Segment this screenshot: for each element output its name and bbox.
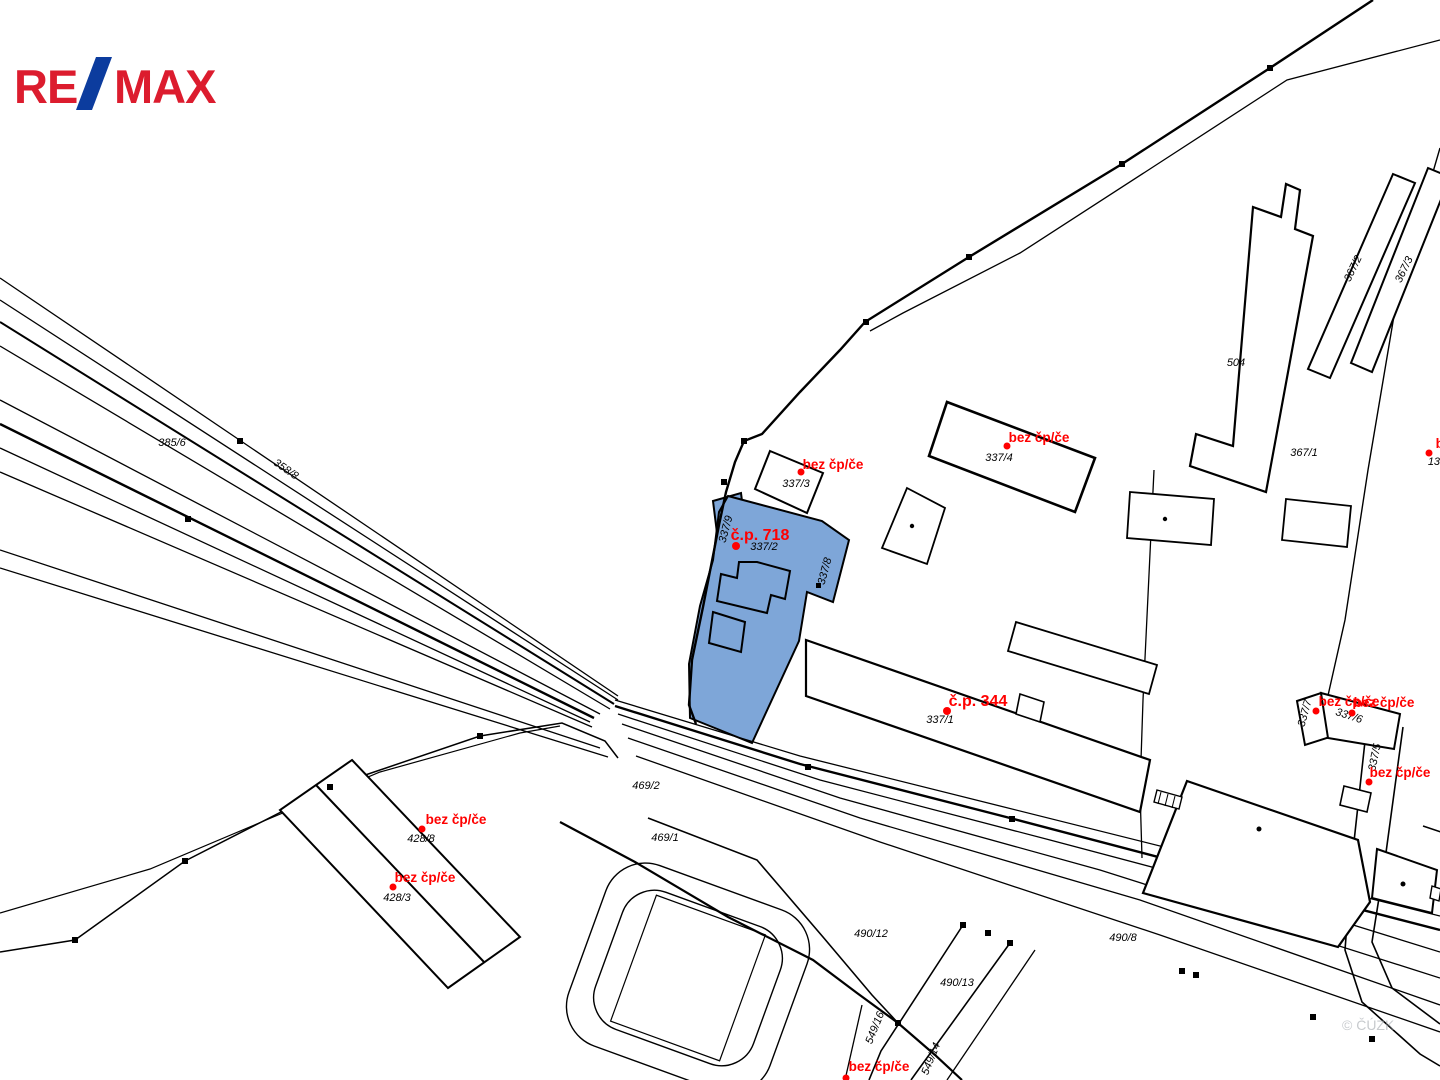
red-label: bez čp/če bbox=[803, 457, 864, 472]
corridor-line bbox=[0, 346, 610, 709]
parcel-label: 337/3 bbox=[782, 478, 810, 490]
red-label: bez čp/če bbox=[426, 812, 487, 827]
building-small-strip-end bbox=[1340, 786, 1371, 812]
red-label: č.p. 344 bbox=[949, 693, 1008, 710]
building-504 bbox=[1190, 184, 1313, 492]
remax-logo-re: RE bbox=[14, 60, 77, 113]
building-edge-partial bbox=[1423, 826, 1440, 832]
branch-road-line bbox=[560, 822, 962, 1080]
red-point-marker bbox=[1349, 710, 1356, 717]
corridor-line bbox=[0, 448, 590, 722]
red-label: bez čp/če bbox=[849, 1059, 910, 1074]
parcel-label: 337/1 bbox=[926, 714, 954, 726]
building-notch bbox=[1154, 790, 1182, 809]
nested-feature bbox=[555, 851, 822, 1080]
parcel-label: 469/2 bbox=[632, 780, 660, 792]
parcel-label: 134 bbox=[1428, 456, 1440, 468]
building-step bbox=[1430, 886, 1440, 901]
parcel-label: 490/13 bbox=[940, 977, 975, 989]
building-small bbox=[1282, 499, 1351, 547]
parcel-label: 490/8 bbox=[1109, 932, 1137, 944]
cadastral-map-page: 385/6 358/8 337/3 337/2 337/9 337/8 337/… bbox=[0, 0, 1440, 1080]
building-long-thin bbox=[1008, 622, 1157, 694]
parcel-label: 428/8 bbox=[407, 833, 435, 845]
corridor-line bbox=[0, 400, 600, 714]
corridor-line bbox=[0, 568, 608, 757]
buildings bbox=[280, 168, 1440, 988]
red-label: bez čp/če bbox=[1370, 765, 1431, 780]
parcel-label: 549/16 bbox=[863, 1009, 887, 1046]
red-label: bez čp/če bbox=[1436, 436, 1440, 451]
map-canvas: 385/6 358/8 337/3 337/2 337/9 337/8 337/… bbox=[0, 0, 1440, 1080]
building-with-point bbox=[1127, 492, 1214, 545]
parcel-label: 469/1 bbox=[651, 832, 679, 844]
parcel-label: 504 bbox=[1227, 357, 1245, 369]
corridor-line bbox=[0, 300, 618, 700]
parcel-label: 337/4 bbox=[985, 452, 1013, 464]
red-label: bez čp/če bbox=[1354, 695, 1415, 710]
parcel-label: 490/12 bbox=[854, 928, 888, 940]
red-label: č.p. 718 bbox=[731, 527, 790, 544]
red-point-marker bbox=[1426, 450, 1433, 457]
strip-line bbox=[869, 925, 963, 1080]
building-small-bottom-right bbox=[1372, 849, 1437, 913]
corridor-line bbox=[0, 424, 594, 718]
copyright-watermark: © ČÚZK bbox=[1342, 1017, 1395, 1033]
remax-logo: RE MAX bbox=[14, 57, 216, 113]
red-point-marker bbox=[419, 826, 426, 833]
red-label: bez čp/če bbox=[1009, 430, 1070, 445]
parcel-label: 385/6 bbox=[158, 437, 186, 449]
parcel-label: 367/1 bbox=[1290, 447, 1318, 459]
corridor-line bbox=[0, 472, 592, 727]
parcel-label: 428/3 bbox=[383, 892, 411, 904]
corridor-line bbox=[0, 278, 618, 696]
remax-logo-slash bbox=[76, 57, 112, 110]
branch-road-line bbox=[648, 818, 898, 1023]
corridor-line bbox=[0, 322, 614, 704]
red-label: bez čp/če bbox=[395, 870, 456, 885]
red-point-marker bbox=[843, 1075, 850, 1080]
remax-logo-max: MAX bbox=[114, 60, 216, 113]
